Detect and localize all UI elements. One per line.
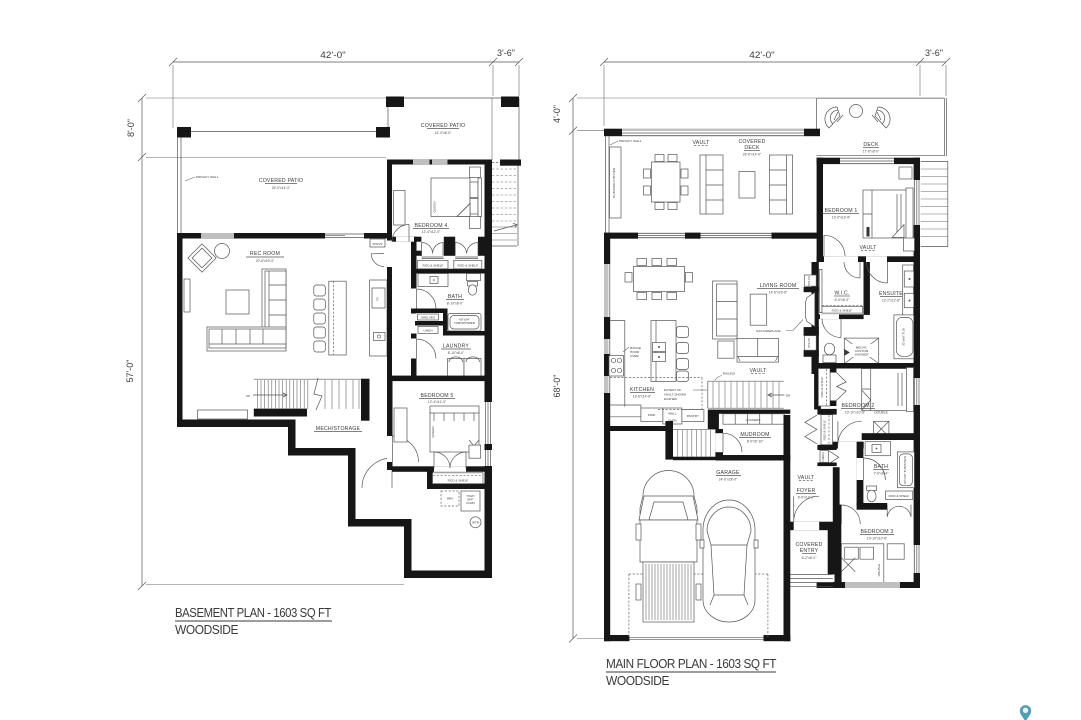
svg-text:RAILING: RAILING (723, 372, 736, 376)
svg-text:26'-6"x14'-0": 26'-6"x14'-0" (743, 153, 762, 157)
svg-text:68'-0": 68'-0" (552, 375, 562, 398)
svg-text:SHLVS: SHLVS (807, 338, 811, 348)
svg-text:6'-6"x13'-2": 6'-6"x13'-2" (798, 496, 815, 500)
svg-text:DN: DN (786, 394, 790, 398)
svg-text:LAUNDRY: LAUNDRY (443, 344, 469, 350)
svg-text:KITCHEN: KITCHEN (630, 387, 654, 393)
svg-text:13'-2"x12'-8": 13'-2"x12'-8" (882, 299, 901, 303)
svg-text:HRV: HRV (447, 497, 454, 501)
svg-text:MUDROOM: MUDROOM (740, 432, 769, 438)
svg-text:OUTDOOR KITCHEN: OUTDOOR KITCHEN (612, 168, 616, 198)
svg-text:PANTRY: PANTRY (687, 414, 699, 418)
svg-text:SHELVES: SHELVES (421, 316, 435, 320)
svg-text:LINEN: LINEN (423, 329, 432, 333)
svg-text:FOYER: FOYER (797, 488, 816, 494)
svg-text:ENSUITE: ENSUITE (879, 291, 903, 297)
svg-text:DECK: DECK (744, 145, 760, 151)
svg-text:8'-10"x6'-0": 8'-10"x6'-0" (448, 351, 465, 355)
svg-text:60"x32" TUB/SHWR: 60"x32" TUB/SHWR (903, 455, 907, 484)
svg-text:10'-10"x10'-8": 10'-10"x10'-8" (867, 537, 888, 541)
svg-text:MECH/STORAGE: MECH/STORAGE (316, 426, 361, 432)
svg-text:20'-8"x19'-0": 20'-8"x19'-0" (256, 259, 275, 263)
svg-text:7'-6"x8'-4": 7'-6"x8'-4" (874, 472, 890, 476)
svg-text:VAULT: VAULT (750, 368, 768, 374)
svg-text:BASEMENT PLAN - 1603 SQ FT: BASEMENT PLAN - 1603 SQ FT (175, 606, 332, 620)
svg-text:8'-0"x5'-10": 8'-0"x5'-10" (747, 440, 764, 444)
svg-text:DECK: DECK (863, 142, 879, 148)
svg-text:13'-6"x14'-6": 13'-6"x14'-6" (633, 395, 652, 399)
svg-text:DOUBLE: DOUBLE (877, 564, 881, 577)
svg-text:COVERED PATIO: COVERED PATIO (421, 123, 466, 129)
svg-text:13'-0"x13'-8": 13'-0"x13'-8" (832, 216, 851, 220)
svg-text:OVER: OVER (630, 354, 640, 358)
svg-text:6'-2"x6'-0": 6'-2"x6'-0" (802, 556, 818, 560)
svg-text:GARAGE: GARAGE (716, 470, 740, 476)
svg-text:ROD & SHELF: ROD & SHELF (820, 377, 824, 398)
svg-text:MAIN FLOOR PLAN - 1603 SQ FT: MAIN FLOOR PLAN - 1603 SQ FT (606, 657, 777, 671)
svg-text:UP: UP (246, 394, 250, 398)
svg-text:14'-6"x19'-6": 14'-6"x19'-6" (769, 291, 788, 295)
svg-text:LINEN: LINEN (821, 452, 825, 461)
svg-text:BEDROOM 3: BEDROOM 3 (861, 529, 894, 535)
svg-text:ROD & SHELF: ROD & SHELF (889, 494, 910, 498)
svg-text:ROD & SHELF: ROD & SHELF (832, 308, 853, 312)
svg-text:W.I.C.: W.I.C. (834, 291, 849, 297)
svg-text:8'-0": 8'-0" (126, 119, 136, 137)
svg-text:BEDROOM 4: BEDROOM 4 (415, 223, 448, 229)
svg-text:GAS FIREPLACE: GAS FIREPLACE (756, 329, 781, 333)
svg-text:FRID.: FRID. (648, 413, 656, 417)
svg-text:ROD & SHELF: ROD & SHELF (448, 479, 469, 483)
svg-text:10'-10"x10'-8": 10'-10"x10'-8" (845, 411, 866, 415)
svg-text:6'-0"x6'-0": 6'-0"x6'-0" (835, 298, 851, 302)
svg-text:WTR: WTR (472, 521, 480, 525)
svg-text:VAULT: VAULT (693, 140, 711, 146)
svg-text:DASHED: DASHED (664, 397, 678, 401)
svg-text:QUEEN: QUEEN (431, 426, 435, 437)
svg-text:BEDROOM 2: BEDROOM 2 (842, 403, 875, 409)
svg-text:12'-4"x11'-0": 12'-4"x11'-0" (428, 400, 447, 404)
svg-text:ROD & SHELF: ROD & SHELF (457, 263, 478, 267)
svg-text:17'-6"x8'-0": 17'-6"x8'-0" (863, 150, 880, 154)
svg-text:SHLVS: SHLVS (807, 276, 811, 286)
svg-text:DOUBLE: DOUBLE (874, 411, 888, 415)
svg-text:ENTRY: ENTRY (800, 548, 819, 554)
svg-text:VAULT SHOWN: VAULT SHOWN (664, 393, 686, 397)
svg-text:42'-0": 42'-0" (749, 50, 775, 60)
svg-text:26'-0"x14'-0": 26'-0"x14'-0" (272, 186, 291, 190)
svg-text:WOODSIDE: WOODSIDE (606, 674, 669, 688)
svg-text:24'-6"x28'-0": 24'-6"x28'-0" (719, 478, 738, 482)
svg-text:42'-0": 42'-0" (320, 50, 346, 60)
svg-text:32"x66" TUB: 32"x66" TUB (902, 328, 906, 346)
svg-text:3'-6": 3'-6" (497, 48, 515, 58)
svg-text:14'-0"x8'-0": 14'-0"x8'-0" (435, 131, 452, 135)
svg-text:COVERED PATIO: COVERED PATIO (259, 178, 304, 184)
svg-text:WOODSIDE: WOODSIDE (175, 623, 238, 637)
svg-text:8'-10"x8'-0": 8'-10"x8'-0" (447, 302, 464, 306)
svg-text:WALL: WALL (668, 412, 677, 416)
svg-text:PRIVACY WALL: PRIVACY WALL (619, 139, 642, 143)
svg-text:BEDROOM 5: BEDROOM 5 (421, 393, 454, 399)
svg-text:QUEEN: QUEEN (433, 201, 437, 212)
svg-text:SHLVS: SHLVS (373, 242, 383, 246)
svg-text:EXTENT OF: EXTENT OF (664, 388, 681, 392)
svg-text:TUB/SHOWER: TUB/SHOWER (454, 321, 476, 325)
svg-text:LOCKERS: LOCKERS (746, 418, 761, 422)
svg-text:4'-0": 4'-0" (552, 105, 562, 123)
svg-text:LIVING ROOM: LIVING ROOM (760, 283, 797, 289)
svg-text:12'-4"x12'-0": 12'-4"x12'-0" (422, 230, 441, 234)
svg-text:57'-0": 57'-0" (125, 360, 135, 383)
svg-text:VAULT: VAULT (798, 475, 816, 481)
svg-text:ROD & SHELF: ROD & SHELF (423, 263, 444, 267)
svg-text:SHOWER: SHOWER (855, 353, 870, 357)
svg-text:BEDROOM 1: BEDROOM 1 (825, 208, 858, 214)
svg-text:ROD & SHELF: ROD & SHELF (823, 420, 827, 441)
svg-text:PRIVACY WALL: PRIVACY WALL (196, 175, 219, 179)
svg-text:FURN: FURN (466, 501, 475, 505)
svg-text:REC ROOM: REC ROOM (250, 251, 280, 257)
svg-text:BATH: BATH (448, 294, 462, 300)
svg-text:VAULT: VAULT (860, 245, 878, 251)
svg-text:3'-6": 3'-6" (925, 48, 943, 58)
